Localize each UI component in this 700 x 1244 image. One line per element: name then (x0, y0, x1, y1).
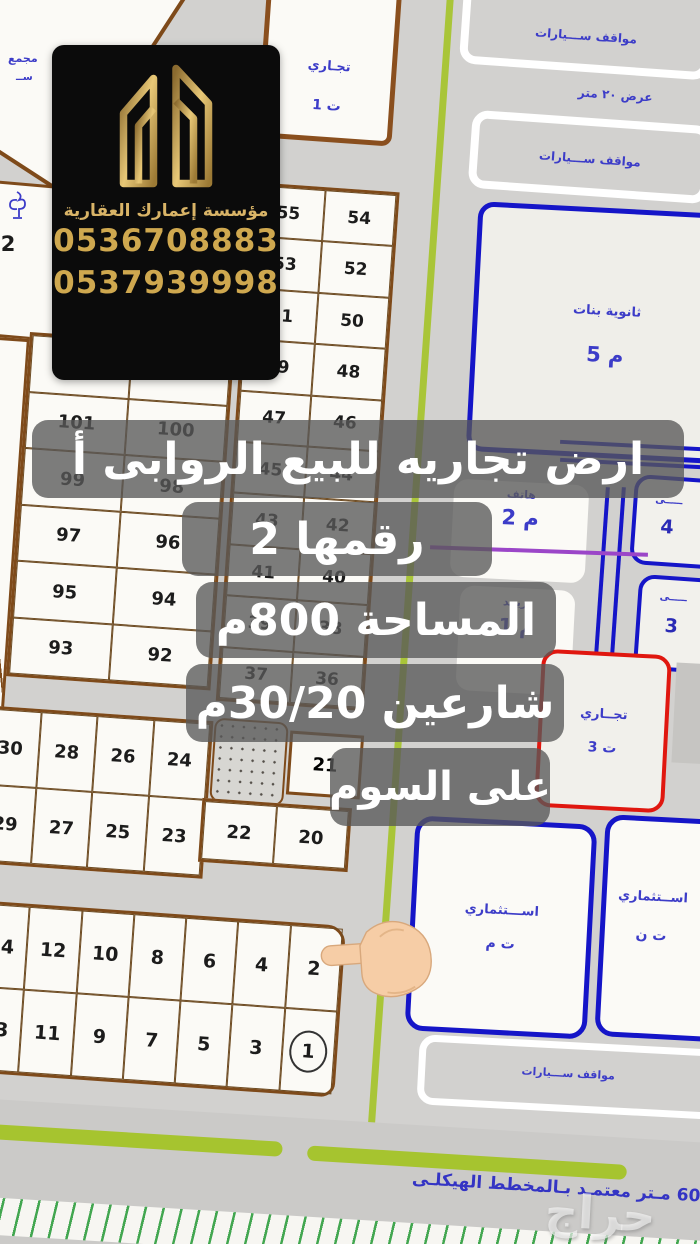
edge-plot-3-number: 3 (615, 611, 700, 641)
parking-label-3: مواقف ســـيارات (425, 1059, 700, 1087)
corner-plot-number: 2 (0, 232, 22, 256)
plot-block-lower-left: 3028262429272523 (0, 705, 213, 879)
parking-label-2: مواقف ســـيارات (478, 144, 700, 174)
corner-plot-label2: ســ (16, 72, 33, 83)
plot-97: 97 (17, 504, 120, 567)
ad-streets-line: شارعين 30/20م (186, 664, 564, 742)
ad-plot-number-line: رقمها 2 (182, 502, 492, 576)
agency-logo-icon (52, 57, 280, 199)
investment-a-label: اســـتثماري (416, 898, 589, 922)
plot-9: 9 (71, 993, 129, 1079)
parking-strip-second: مواقف ســـيارات (468, 110, 700, 205)
parking-label-1: مواقف ســـيارات (469, 21, 700, 51)
plot-50: 50 (315, 293, 389, 349)
plot-95: 95 (13, 561, 116, 624)
plot-22: 22 (201, 801, 277, 864)
ad-title-line: ارض تجاريه للبيع الروابى أ (32, 420, 684, 498)
commercial-t1-code: ت 1 (264, 94, 390, 119)
ad-area-line: المساحة 800م (196, 582, 556, 658)
edge-plot-4-number: 4 (610, 512, 700, 542)
listing-image: مجمع ســ 2 تجـاري ت 1 555453525150494847… (0, 0, 700, 1244)
school-label: ثانوية بنات (478, 297, 700, 325)
utility-icon (6, 190, 28, 224)
plot-6: 6 (181, 918, 239, 1004)
investment-b-code: ت ن (578, 924, 700, 948)
plot-30: 30 (0, 708, 41, 788)
phone-number-2: 0537939998 (52, 263, 280, 305)
pointing-finger-icon (317, 908, 436, 1015)
street-line-vertical (594, 487, 610, 655)
parking-strip-bottom: مواقف ســـيارات (416, 1034, 700, 1120)
plot-12: 12 (24, 907, 82, 993)
plot-48: 48 (311, 344, 385, 400)
plot-5: 5 (175, 1001, 233, 1087)
plot-52: 52 (318, 241, 392, 297)
commercial-t3-code: ت 3 (541, 737, 664, 759)
agency-name: مؤسسة إعمارك العقارية (52, 201, 280, 221)
investment-a-code: ت م (414, 931, 587, 956)
parking-strip-top: مواقف ســـيارات (459, 0, 700, 81)
plot-7: 7 (123, 997, 181, 1083)
haraj-watermark: حراج (544, 1183, 657, 1243)
plot-8: 8 (128, 914, 186, 1000)
plot-strip-bottom: 1412108642131197531 (0, 900, 346, 1098)
plot-27: 27 (31, 788, 93, 868)
plot-4: 4 (233, 921, 291, 1007)
edge-plot-3-label: ـــــى (617, 589, 700, 608)
commercial-t1-label: تجـاري (266, 55, 392, 79)
plot-93: 93 (9, 617, 112, 680)
plot-25: 25 (87, 792, 149, 872)
street-width-label: عرض ٢٠ متر (578, 85, 653, 104)
plot-11: 11 (18, 990, 76, 1076)
plot-10: 10 (76, 910, 134, 996)
agency-logo-card: مؤسسة إعمارك العقارية 0536708883 0537939… (52, 45, 280, 380)
plot-54: 54 (322, 190, 396, 246)
road-marking (0, 1124, 283, 1157)
plot-1: 1 (279, 1008, 337, 1094)
corner-plot-label: مجمع (8, 52, 38, 65)
investment-plot-b: اســتثماري ت ن (594, 814, 700, 1044)
investment-b-label: اســتثماري (580, 886, 700, 909)
plot-23: 23 (143, 796, 205, 876)
gray-block (671, 662, 700, 765)
ad-price-line: على السوم (330, 748, 550, 826)
phone-number-1: 0536708883 (52, 221, 280, 263)
plot-26: 26 (92, 716, 154, 796)
plot-28: 28 (36, 712, 98, 792)
school-code: م 5 (475, 336, 700, 373)
plot-3: 3 (227, 1004, 285, 1090)
